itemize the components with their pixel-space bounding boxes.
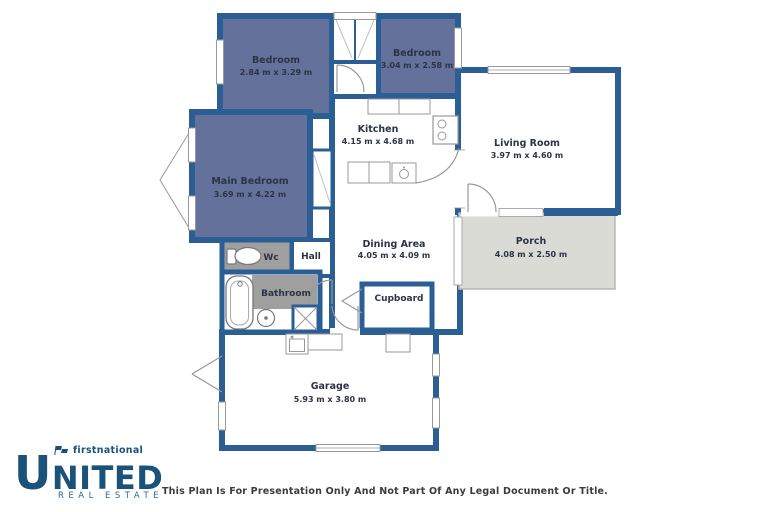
garage-door — [316, 445, 380, 452]
bedroom2-label: Bedroom — [393, 48, 441, 59]
window — [334, 13, 376, 20]
laundry-tub-icon — [286, 334, 308, 354]
kitchen-label: Kitchen — [358, 124, 399, 135]
disclaimer-text: This Plan Is For Presentation Only And N… — [160, 486, 610, 497]
porch-side-window — [454, 217, 462, 285]
logo-prefix-text: firstnational — [73, 445, 143, 456]
firstnational-flag-icon — [54, 445, 69, 455]
bathroom-sink-icon — [258, 310, 275, 327]
kitchen-bench — [348, 162, 390, 183]
living-room-dims: 3.97 m x 4.60 m — [491, 151, 563, 160]
window — [217, 40, 224, 84]
window — [455, 28, 462, 68]
garage-dims: 5.93 m x 3.80 m — [294, 395, 366, 404]
floor-plan-page: Bedroom 2.84 m x 3.29 m Bedroom 3.04 m x… — [0, 0, 768, 512]
porch-dims: 4.08 m x 2.50 m — [495, 250, 567, 259]
dining-area-label: Dining Area — [363, 239, 426, 250]
bedroom1-dims: 2.84 m x 3.29 m — [240, 68, 312, 77]
bedroom1-label: Bedroom — [252, 55, 300, 66]
garage-exterior-door — [192, 356, 222, 392]
cupboard-label: Cupboard — [374, 294, 423, 304]
main-bedroom-dims: 3.69 m x 4.22 m — [214, 190, 286, 199]
logo-tagline: REAL ESTATE — [58, 491, 163, 501]
main-bedroom-robe — [312, 150, 332, 208]
stove-icon — [433, 116, 458, 144]
living-room-label: Living Room — [494, 138, 560, 149]
toilet-icon — [227, 248, 261, 265]
window — [219, 402, 226, 430]
logo-brand-name: UNITED — [14, 456, 163, 495]
entry-hall-top — [332, 62, 378, 96]
water-cylinder-icon — [386, 334, 410, 352]
wardrobe-closets — [332, 16, 378, 62]
room-porch-shell — [454, 208, 618, 289]
porch-door-sidelight — [499, 209, 543, 217]
hall-label: Hall — [301, 252, 321, 262]
window — [433, 398, 440, 428]
united-real-estate-logo: firstnational UNITED REAL ESTATE — [14, 444, 163, 501]
room-bedroom1-shell — [220, 16, 332, 116]
wc-label: Wc — [263, 253, 278, 263]
garage-bench — [308, 334, 342, 350]
casement-opening — [160, 133, 189, 228]
kitchen-sink-icon — [392, 163, 416, 183]
window — [433, 354, 440, 376]
hot-water-cupboard-icon — [293, 306, 318, 331]
porch-top-wall — [544, 208, 618, 216]
window — [189, 128, 196, 162]
window — [189, 196, 196, 230]
floor-plan-drawing: Bedroom 2.84 m x 3.29 m Bedroom 3.04 m x… — [0, 0, 768, 512]
kitchen-dims: 4.15 m x 4.68 m — [342, 137, 414, 146]
bathtub-icon — [226, 276, 253, 329]
garage-label: Garage — [311, 381, 350, 392]
bedroom2-dims: 3.04 m x 2.58 m — [381, 61, 453, 70]
main-bedroom-label: Main Bedroom — [211, 176, 288, 187]
dining-area-dims: 4.05 m x 4.09 m — [358, 251, 430, 260]
kitchen-counter-top — [368, 99, 430, 114]
porch-label: Porch — [516, 236, 547, 247]
bathroom-label: Bathroom — [261, 289, 311, 299]
